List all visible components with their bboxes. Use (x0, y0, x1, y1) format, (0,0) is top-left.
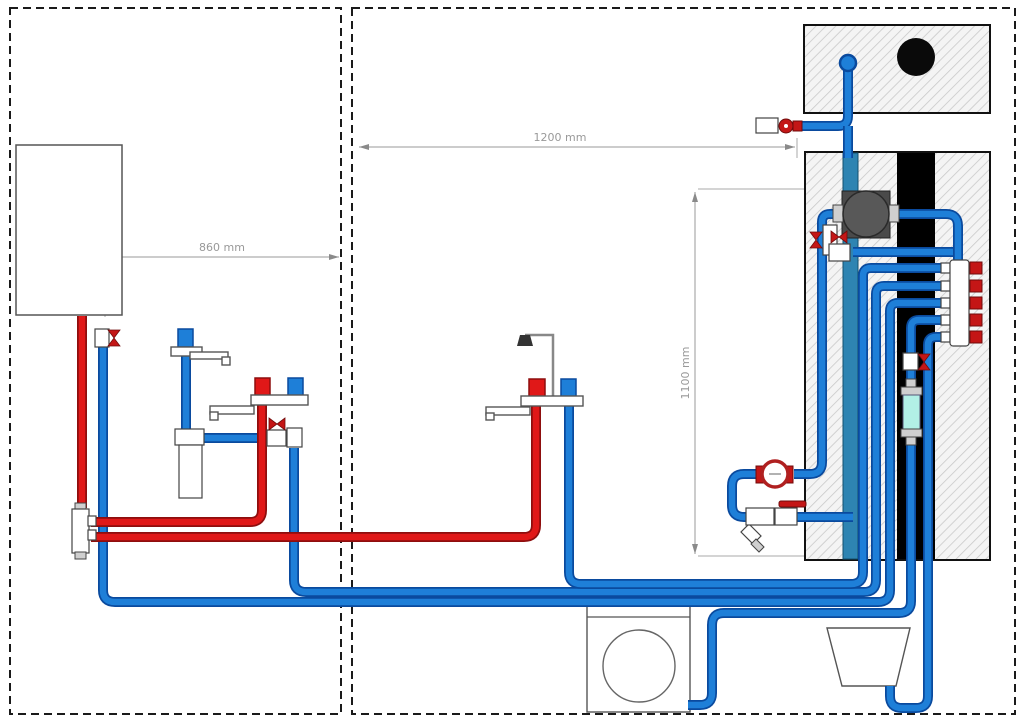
manifold-icon (950, 260, 969, 346)
toilet-cistern (804, 25, 990, 113)
ball-valve-lever-icon (779, 501, 806, 507)
manifold-valve-5 (970, 331, 982, 343)
washer-door (603, 630, 675, 702)
boiler (16, 145, 122, 315)
dimension-860: 860 mm (105, 241, 339, 317)
manifold-valve-4 (970, 314, 982, 326)
cistern-valve (756, 118, 802, 133)
strainer (741, 508, 774, 552)
shower-head-icon (517, 335, 533, 346)
mixer-handle-hot (255, 378, 270, 396)
dimension-1200-label: 1200 mm (534, 131, 587, 144)
circulation-pump (833, 191, 899, 238)
manifold-valve-2 (970, 280, 982, 292)
valve-bowtie-icon (108, 330, 120, 346)
water-filter-cartridge (179, 445, 202, 498)
hot-water-distributor (72, 503, 96, 559)
left-room-border (10, 8, 341, 714)
washing-machine (587, 592, 690, 712)
manifold (941, 260, 982, 346)
cistern-float-fitting (840, 55, 856, 71)
pump-icon (843, 191, 889, 237)
dimension-860-label: 860 mm (199, 241, 245, 254)
tee-fitting (287, 428, 302, 447)
bucket (827, 628, 910, 686)
tap-handle-cold (178, 329, 193, 347)
mixer-handle-cold (288, 378, 303, 396)
manifold-valve-1 (970, 262, 982, 274)
boiler-inlet-valve (95, 329, 120, 347)
dimension-1200: 1200 mm (359, 131, 797, 158)
cistern-opening (897, 38, 935, 76)
mixer-handle-cold (561, 379, 576, 397)
filter-head (175, 429, 204, 445)
water-meter (756, 461, 793, 487)
washer-filter (901, 379, 922, 445)
pipe-hot-sink-mixer (91, 404, 262, 522)
manifold-valve-3 (970, 297, 982, 309)
valve-bowtie-icon (269, 418, 285, 430)
filter-branch-valve (267, 418, 302, 447)
plumbing-diagram: 860 mm 1200 mm 1100 mm (0, 0, 1024, 724)
mixer-handle-hot (529, 379, 545, 397)
strainer-icon (903, 395, 920, 429)
dimension-1100-label: 1100 mm (679, 347, 692, 400)
